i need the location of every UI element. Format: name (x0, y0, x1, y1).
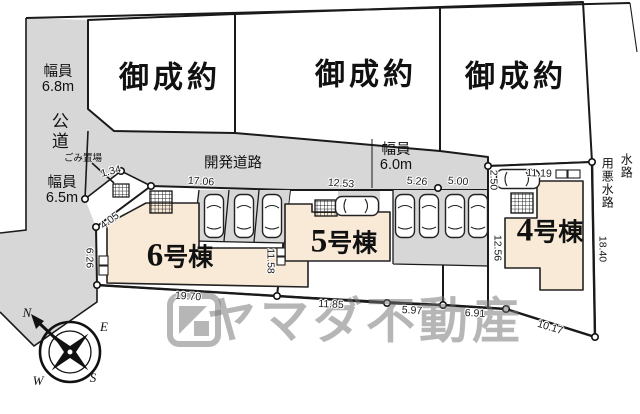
site-plan: ヤマダ不動産 御成約 御成約 御成約 幅員 6.8m 公道 幅員 6.5m 開発… (0, 0, 640, 414)
hatch-lot5 (315, 200, 337, 216)
garbage-hatch (113, 184, 129, 197)
top-right-edge (630, 3, 637, 52)
site-plan-drawing (0, 0, 640, 414)
company-logo-icon (170, 296, 218, 344)
hatch-lot4 (511, 193, 533, 213)
lot-sold-2 (235, 7, 440, 151)
lot-sold-3 (440, 2, 592, 166)
hatch-lot6 (150, 191, 172, 213)
lot-sold-1 (88, 14, 235, 133)
